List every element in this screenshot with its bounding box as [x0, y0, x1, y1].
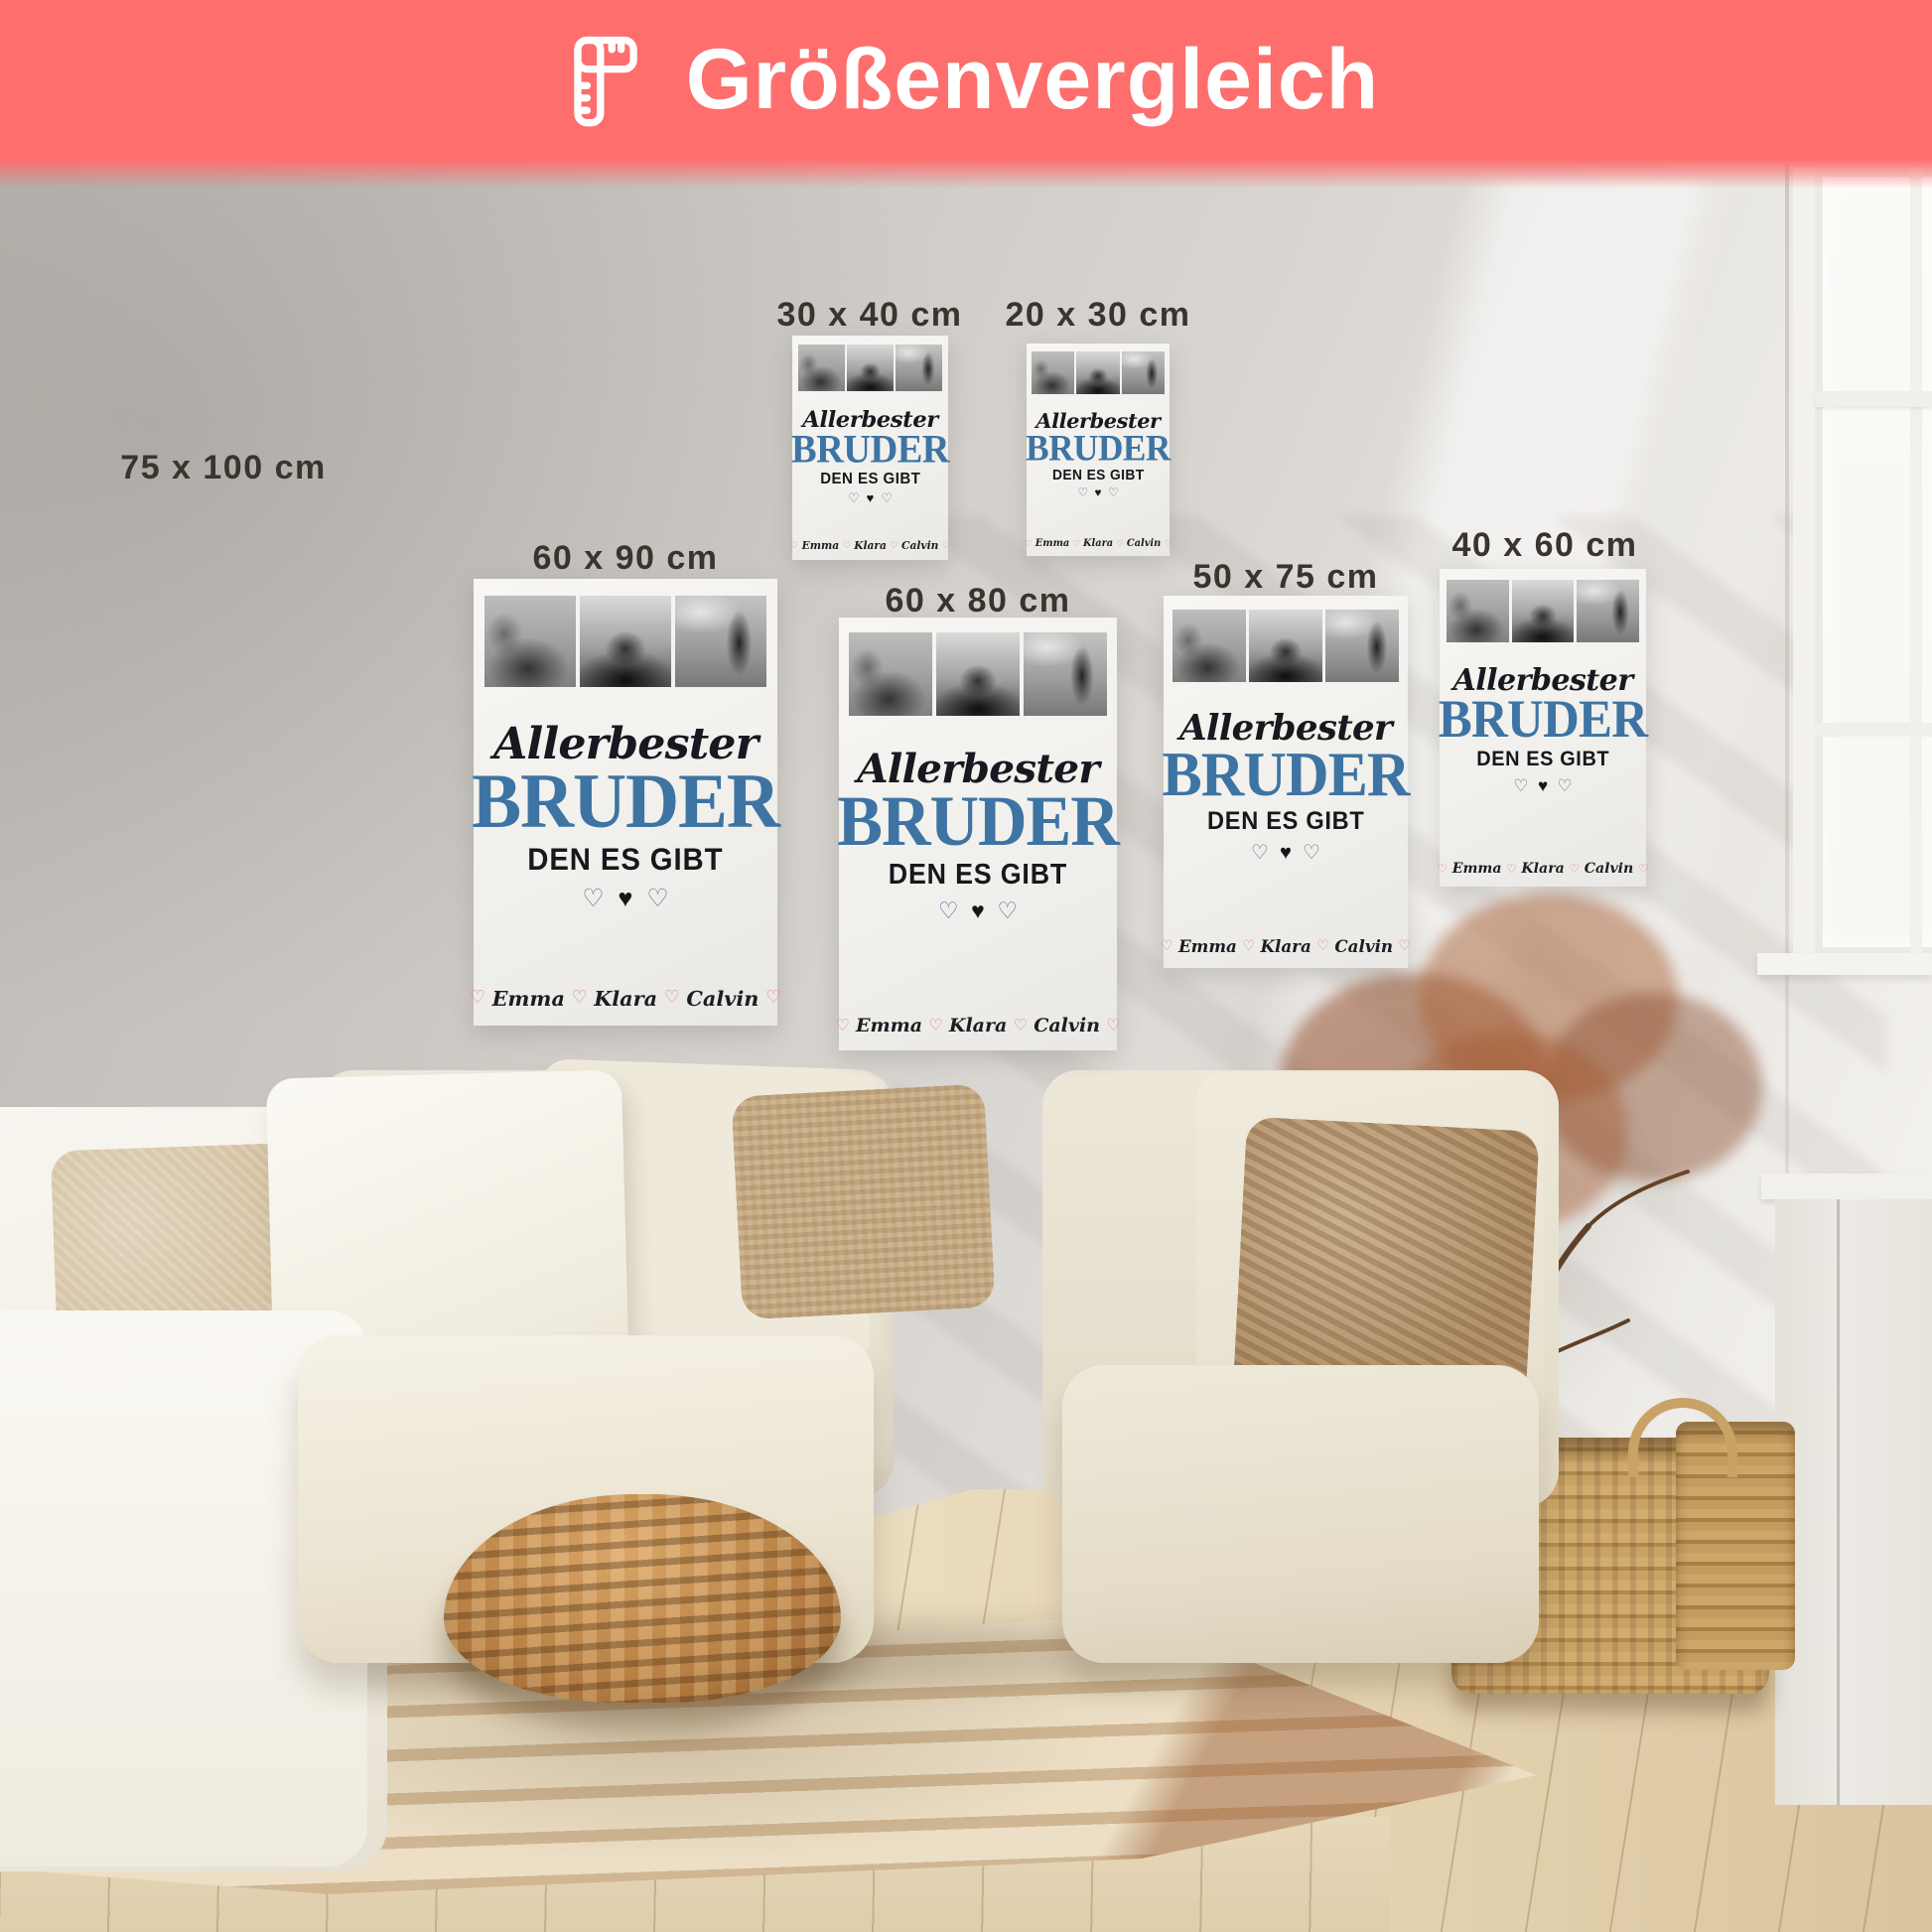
outline-heart-icon: ♡: [1557, 777, 1572, 794]
names-heart-icon: ♡: [664, 989, 680, 1007]
ruler-icon: [553, 28, 656, 131]
window-sash-bar: [1815, 391, 1932, 407]
outline-heart-icon: ♡: [646, 887, 668, 911]
window: [1793, 167, 1932, 957]
poster-photo-strip: [1447, 580, 1638, 641]
solid-heart-icon: ♥: [867, 492, 875, 505]
names-heart-icon: ♡: [1025, 539, 1032, 547]
outline-heart-icon: ♡: [881, 492, 893, 505]
father-child-lake-photo: [1577, 580, 1639, 641]
names-heart-icon: ♡: [765, 989, 781, 1007]
child-name: Emma: [1035, 538, 1070, 549]
throw-pillow-tan-woven: [731, 1083, 995, 1319]
family-silhouette-sunset-photo: [1249, 610, 1322, 683]
solid-heart-icon: ♥: [1280, 843, 1292, 863]
names-heart-icon: ♡: [470, 989, 485, 1007]
poster-hearts-row: ♡♥♡: [848, 492, 893, 505]
names-heart-icon: ♡: [1014, 1018, 1029, 1034]
child-name: Klara: [1260, 936, 1311, 956]
child-name: Calvin: [901, 539, 938, 552]
names-heart-icon: ♡: [572, 989, 588, 1007]
names-heart-icon: ♡: [1116, 539, 1123, 547]
outline-heart-icon: ♡: [1513, 777, 1528, 794]
child-name: Klara: [949, 1015, 1007, 1036]
outline-heart-icon: ♡: [848, 492, 860, 505]
size-label: 75 x 100 cm: [94, 449, 352, 487]
outline-heart-icon: ♡: [938, 899, 959, 922]
solid-heart-icon: ♥: [1538, 777, 1548, 794]
poster-names-line: ♡Emma♡Klara♡Calvin♡: [1161, 936, 1411, 956]
child-name: Klara: [1083, 538, 1113, 549]
names-heart-icon: ♡: [942, 541, 950, 550]
child-name: Calvin: [1585, 861, 1634, 877]
family-sitting-photo: [1032, 351, 1074, 394]
child-name: Emma: [1452, 861, 1502, 877]
poster-preview: Allerbester BRUDER DEN ES GIBT ♡♥♡ ♡Emma…: [1164, 596, 1408, 968]
size-label: 60 x 80 cm: [849, 582, 1107, 621]
page-title: Größenvergleich: [686, 31, 1379, 129]
family-sitting-photo: [484, 596, 576, 687]
poster-preview: Allerbester BRUDER DEN ES GIBT ♡♥♡ ♡Emma…: [474, 579, 777, 1026]
father-child-lake-photo: [1024, 632, 1107, 716]
header-banner: Größenvergleich: [0, 0, 1932, 159]
child-name: Emma: [492, 986, 565, 1011]
outline-heart-icon: ♡: [582, 887, 604, 911]
poster-preview: Allerbester BRUDER DEN ES GIBT ♡♥♡ ♡Emma…: [1027, 344, 1170, 556]
window-sill: [1757, 953, 1932, 975]
poster-subtitle: DEN ES GIBT: [1207, 807, 1364, 836]
poster-names-line: ♡Emma♡Klara♡Calvin♡: [470, 986, 781, 1011]
family-silhouette-sunset-photo: [936, 632, 1020, 716]
family-silhouette-sunset-photo: [847, 345, 894, 391]
poster-main-title: BRUDER: [791, 431, 949, 471]
poster-hearts-row: ♡♥♡: [1513, 777, 1572, 794]
solid-heart-icon: ♥: [619, 887, 633, 911]
poster-preview: Allerbester BRUDER DEN ES GIBT ♡♥♡ ♡Emma…: [839, 618, 1117, 1050]
family-sitting-photo: [849, 632, 932, 716]
size-label: 20 x 30 cm: [969, 296, 1227, 335]
names-heart-icon: ♡: [1161, 939, 1173, 953]
child-name: Emma: [856, 1015, 922, 1036]
poster-hearts-row: ♡♥♡: [582, 887, 668, 911]
poster-subtitle: DEN ES GIBT: [527, 842, 723, 878]
banner-fade: [0, 159, 1932, 189]
names-heart-icon: ♡: [1164, 539, 1171, 547]
size-label: 60 x 90 cm: [496, 539, 755, 578]
window-mullion: [1910, 167, 1922, 957]
poster-names-line: ♡Emma♡Klara♡Calvin♡: [1437, 861, 1648, 877]
solid-heart-icon: ♥: [971, 899, 985, 922]
child-name: Klara: [854, 539, 887, 552]
child-name: Emma: [802, 539, 840, 552]
names-heart-icon: ♡: [1437, 863, 1448, 875]
father-child-lake-photo: [1122, 351, 1165, 394]
size-label: 30 x 40 cm: [741, 296, 999, 335]
poster-preview: Allerbester BRUDER DEN ES GIBT ♡♥♡ ♡Emma…: [792, 336, 948, 560]
names-heart-icon: ♡: [1569, 863, 1580, 875]
family-sitting-photo: [1447, 580, 1509, 641]
outline-heart-icon: ♡: [1077, 487, 1088, 499]
outline-heart-icon: ♡: [1108, 487, 1119, 499]
poster-subtitle: DEN ES GIBT: [1052, 468, 1145, 483]
poster-subtitle: DEN ES GIBT: [1476, 748, 1609, 771]
outline-heart-icon: ♡: [1303, 843, 1320, 863]
solid-heart-icon: ♥: [1094, 487, 1101, 499]
family-silhouette-sunset-photo: [1512, 580, 1575, 641]
names-heart-icon: ♡: [1638, 863, 1649, 875]
names-heart-icon: ♡: [843, 541, 851, 550]
poster-hearts-row: ♡♥♡: [1077, 487, 1118, 499]
family-silhouette-sunset-photo: [1076, 351, 1119, 394]
poster-subtitle: DEN ES GIBT: [820, 471, 920, 488]
names-heart-icon: ♡: [790, 541, 798, 550]
poster-preview: Allerbester BRUDER DEN ES GIBT ♡♥♡ ♡Emma…: [1440, 569, 1646, 887]
poster-main-title: BRUDER: [1439, 695, 1648, 747]
poster-main-title: BRUDER: [472, 763, 779, 840]
poster-photo-strip: [849, 632, 1107, 716]
child-name: Calvin: [1334, 936, 1393, 956]
names-heart-icon: ♡: [928, 1018, 943, 1034]
names-heart-icon: ♡: [1072, 539, 1079, 547]
names-heart-icon: ♡: [1506, 863, 1517, 875]
child-name: Calvin: [1127, 538, 1161, 549]
poster-photo-strip: [798, 345, 943, 391]
names-heart-icon: ♡: [1316, 939, 1329, 953]
poster-hearts-row: ♡♥♡: [1251, 843, 1320, 863]
poster-names-line: ♡Emma♡Klara♡Calvin♡: [1025, 538, 1172, 549]
sideboard-door-gap: [1837, 1199, 1840, 1805]
names-heart-icon: ♡: [1242, 939, 1255, 953]
names-heart-icon: ♡: [890, 541, 897, 550]
child-name: Calvin: [1034, 1015, 1100, 1036]
father-child-lake-photo: [896, 345, 942, 391]
poster-hearts-row: ♡♥♡: [938, 899, 1018, 922]
father-child-lake-photo: [675, 596, 766, 687]
window-sash-bar: [1815, 723, 1932, 737]
family-sitting-photo: [798, 345, 845, 391]
father-child-lake-photo: [1325, 610, 1399, 683]
child-name: Klara: [594, 986, 657, 1011]
family-sitting-photo: [1173, 610, 1246, 683]
poster-main-title: BRUDER: [837, 786, 1118, 857]
size-label: 50 x 75 cm: [1157, 558, 1415, 597]
child-name: Klara: [1521, 861, 1564, 877]
names-heart-icon: ♡: [835, 1018, 850, 1034]
poster-photo-strip: [1173, 610, 1400, 683]
poster-photo-strip: [484, 596, 767, 687]
family-silhouette-sunset-photo: [580, 596, 671, 687]
poster-subtitle: DEN ES GIBT: [889, 859, 1067, 892]
sofa-seat: [1062, 1365, 1539, 1663]
poster-main-title: BRUDER: [1162, 745, 1409, 806]
size-label: 40 x 60 cm: [1416, 526, 1674, 565]
child-name: Emma: [1178, 936, 1237, 956]
poster-photo-strip: [1032, 351, 1165, 394]
poster-names-line: ♡Emma♡Klara♡Calvin♡: [835, 1015, 1120, 1036]
outline-heart-icon: ♡: [997, 899, 1018, 922]
poster-names-line: ♡Emma♡Klara♡Calvin♡: [790, 539, 950, 552]
poster-main-title: BRUDER: [1026, 431, 1171, 467]
names-heart-icon: ♡: [1398, 939, 1411, 953]
outline-heart-icon: ♡: [1251, 843, 1269, 863]
names-heart-icon: ♡: [1106, 1018, 1121, 1034]
child-name: Calvin: [686, 986, 759, 1011]
size-comparison-scene: Größenvergleich 75 x 100 cm30 x 40 cm Al…: [0, 0, 1932, 1932]
